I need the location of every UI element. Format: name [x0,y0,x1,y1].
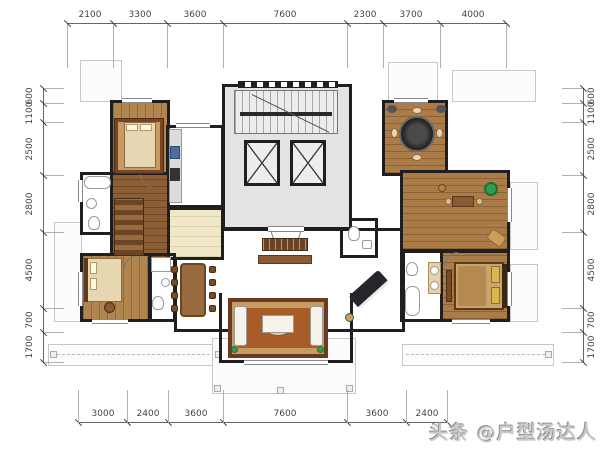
extension-line [383,24,384,68]
extension-line [78,390,79,423]
chair [445,198,452,205]
core-window-band [238,81,338,88]
eave-dashed-line [406,354,550,355]
dimension-label: 2800 [25,193,35,216]
dimension-label: 2500 [587,138,597,161]
round-dining-table [399,116,435,152]
bathtub [405,286,420,316]
extension-line [562,308,583,309]
plant [231,346,238,353]
elevator-shaft [290,140,326,186]
dimension-label: 3600 [185,409,208,419]
headboard [502,264,507,308]
toilet [152,296,164,310]
sink [86,198,97,209]
shower [151,257,171,272]
kitchen-stove [170,168,180,181]
window [507,188,512,222]
extension-line [223,24,224,68]
pillow [491,287,500,304]
eave-outline-bottom-left [48,344,224,366]
sofa [310,306,323,346]
dining-chair [209,292,216,299]
extension-line [44,122,64,123]
dimension-label: 700 [587,311,597,328]
bathtub [84,176,111,189]
chair [412,107,422,114]
window [507,272,512,306]
dining-chair [209,305,216,312]
plant [484,182,498,196]
dimension-label: 2300 [354,10,377,20]
extension-line [127,390,128,423]
dimension-label: 1700 [587,336,597,359]
piano-stool [345,313,354,322]
dimension-label: 700 [25,311,35,328]
room-foyer [166,205,224,260]
sink [161,278,170,287]
toilet [88,216,100,230]
extension-line [44,362,64,363]
extension-line [44,103,64,104]
dimension-label: 4500 [587,259,597,282]
extension-line [44,175,64,176]
elevator-shaft [244,140,280,186]
pillow [90,262,97,274]
kitchen-sink [170,146,180,159]
dimension-label: 2800 [587,193,597,216]
side-table [104,302,115,313]
toilet [348,226,360,241]
extension-line [44,232,64,233]
dimension-label: 2400 [137,409,160,419]
window [92,319,128,324]
extension-line [562,175,583,176]
bed-blanket [458,266,486,306]
window [452,319,490,324]
extension-line [44,88,64,89]
dimension-label: 4000 [462,10,485,20]
chair [412,154,422,161]
column-mark [277,387,284,394]
dining-chair [171,305,178,312]
column-mark [50,351,57,358]
window [78,180,83,202]
dimension-label: 2100 [79,10,102,20]
sink [362,240,372,249]
staircase-handrail [240,112,332,116]
window [122,98,152,103]
dimension-label: 3600 [184,10,207,20]
decor [438,184,446,192]
extension-line [562,232,583,233]
extension-line [562,332,583,333]
window [78,272,83,306]
corner-decor [387,105,397,113]
chair [476,198,483,205]
extension-line [562,88,583,89]
extension-line [44,308,64,309]
extension-line [406,390,407,423]
coffee-table [262,315,294,333]
dimension-label: 7600 [274,409,297,419]
sink [430,266,439,275]
watermark-toutiao: 头条 @户型汤达人 [429,418,597,445]
kitchen-counter [169,129,182,203]
dimension-label: 7600 [274,10,297,20]
dimension-label: 4500 [25,259,35,282]
dining-chair [171,266,178,273]
window [244,360,328,365]
dining-table [180,263,206,317]
dining-chair [171,279,178,286]
extension-line [223,390,224,423]
extension-line [67,24,68,68]
dimension-label: 1100 [25,102,35,125]
headboard [84,258,88,302]
pillow [140,124,152,131]
wardrobe [114,198,144,256]
chair [436,128,443,138]
dimension-line-bottom [78,422,447,423]
extension-line [113,24,114,68]
extension-line [167,24,168,68]
chair [391,128,398,138]
entry-screen-cabinet [262,238,308,251]
eave-outline-bottom-right [402,344,554,366]
sink [430,281,439,290]
desk [452,196,474,207]
window [176,123,210,128]
terrace-outline-top-left [80,60,122,102]
column-mark [545,351,552,358]
extension-line [562,103,583,104]
dimension-line-right [583,88,584,362]
pillow [126,124,138,131]
pillow [90,278,97,290]
sofa [234,306,247,346]
extension-line [347,24,348,68]
extension-line [440,24,441,68]
extension-line [347,390,348,423]
extension-line [44,332,64,333]
floor-plan-image: 2100 3300 3600 7600 2300 3700 4000 3000 … [0,0,600,450]
pillow [491,266,500,283]
window [394,98,428,103]
toilet [406,262,418,276]
dimension-label: 3700 [400,10,423,20]
dimension-label: 1700 [25,336,35,359]
bay-window-outline-right [510,182,538,250]
extension-line [562,362,583,363]
balcony-outline-right [510,264,538,322]
dining-chair [209,266,216,273]
bed-bench [446,270,452,302]
dimension-line-left [43,88,44,362]
dining-chair [171,292,178,299]
terrace-outline-top-right-2 [452,70,536,102]
column-mark [214,385,221,392]
console-bench [258,255,312,264]
dimension-label: 3600 [366,409,389,419]
eave-dashed-line [52,354,220,355]
dimension-label: 3300 [129,10,152,20]
dining-chair [209,279,216,286]
extension-line [168,390,169,423]
plant [317,346,324,353]
corner-decor [436,105,446,113]
dimension-label: 3000 [92,409,115,419]
terrace-outline-top-right [388,62,438,102]
dimension-label: 2500 [25,138,35,161]
dimension-label: 1100 [587,102,597,125]
extension-line [562,122,583,123]
extension-line [506,24,507,68]
